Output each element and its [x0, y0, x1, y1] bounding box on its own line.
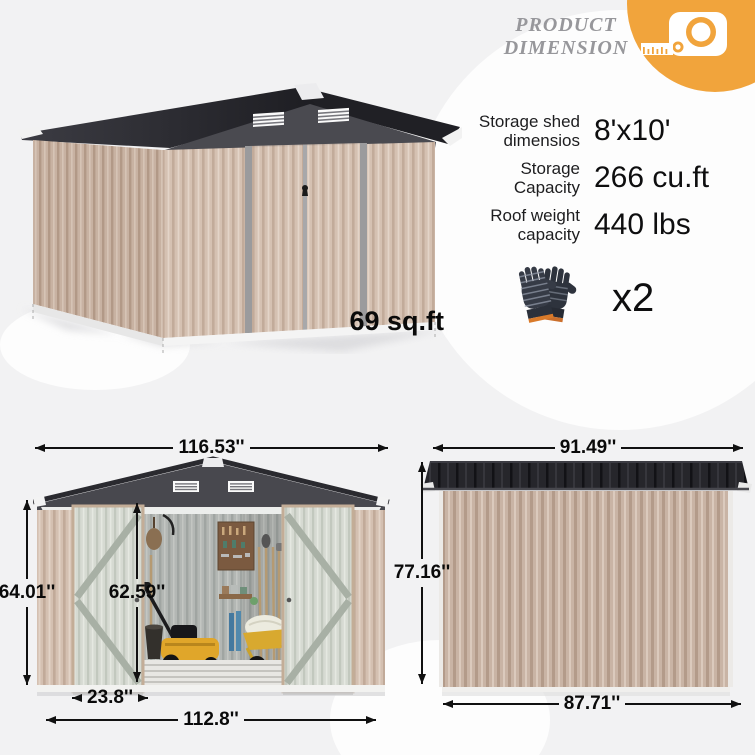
dimension-arrow — [136, 503, 138, 579]
dimension-arrow — [136, 607, 138, 683]
dim-side-overall-height: 77.16'' — [421, 462, 423, 684]
spec-label: Storage Capacity — [460, 159, 580, 197]
spec-label: Storage shed dimensios — [460, 112, 580, 150]
page-title-line1: PRODUCT — [498, 14, 634, 37]
gloves-quantity-label: x2 — [612, 276, 654, 321]
dimension-arrow — [443, 703, 559, 705]
spec-value: 440 lbs — [594, 208, 691, 242]
spec-row-roof-weight: Roof weight capacity 440 lbs — [460, 206, 750, 244]
gable-vent — [253, 112, 284, 127]
spec-row-capacity: Storage Capacity 266 cu.ft — [460, 159, 750, 197]
product-dimension-infographic: PRODUCT DIMENSION — [0, 0, 755, 755]
dim-front-overall-height: 64.01'' — [26, 500, 28, 685]
right-door-open — [283, 506, 353, 692]
dimension-arrow — [433, 447, 555, 449]
tape-measure-icon — [641, 12, 735, 60]
dim-front-base-width: 112.8'' — [46, 708, 376, 732]
gloves-icon — [512, 258, 600, 338]
spec-list: Storage shed dimensios 8'x10' Storage Ca… — [460, 112, 750, 244]
spec-value: 8'x10' — [594, 114, 671, 148]
dimension-arrow — [46, 719, 178, 721]
spec-value: 266 cu.ft — [594, 161, 709, 195]
dim-side-base-width: 87.71'' — [443, 692, 741, 716]
dimension-arrow — [621, 447, 743, 449]
dimension-arrow — [138, 697, 148, 699]
dimension-arrow — [26, 607, 28, 686]
dimension-arrow — [421, 587, 423, 684]
dimension-arrow — [250, 447, 388, 449]
keyhole-icon — [302, 185, 308, 196]
spec-label: Roof weight capacity — [460, 206, 580, 244]
dimension-arrow — [244, 719, 376, 721]
floor-area-label: 69 sq.ft — [338, 306, 444, 337]
dim-side-overall-width: 91.49'' — [433, 436, 743, 460]
dim-door-width: 23.8'' — [72, 686, 146, 710]
page-title: PRODUCT DIMENSION — [498, 14, 634, 60]
dimension-arrow — [72, 697, 82, 699]
dimension-arrow — [421, 462, 423, 559]
accessory-row: x2 — [512, 258, 654, 338]
dim-door-height: 62.59'' — [136, 503, 138, 682]
gable-vent — [318, 108, 349, 123]
page-title-line2: DIMENSION — [498, 37, 634, 60]
dimension-arrow — [26, 500, 28, 579]
front-view-illustration — [33, 455, 390, 703]
spec-row-dimensions: Storage shed dimensios 8'x10' — [460, 112, 750, 150]
dimension-arrow — [35, 447, 173, 449]
dim-front-overall-width: 116.53'' — [35, 436, 388, 460]
dimension-arrow — [625, 703, 741, 705]
side-view-illustration — [420, 455, 752, 705]
